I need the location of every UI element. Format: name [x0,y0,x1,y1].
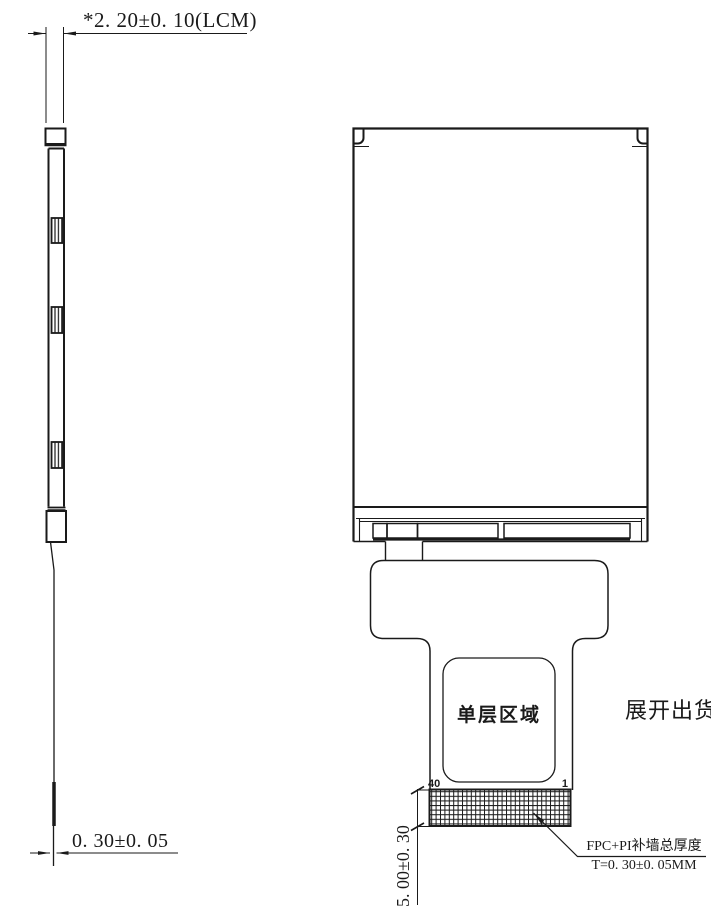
connector-dim-line [418,789,430,905]
single-layer-area-label: 单层区域 [443,706,555,725]
ledge-component-b [387,524,418,539]
connector-depth-dimension-text: 5. 00±0. 30 [394,821,414,911]
panel-notch-top-right [638,129,648,144]
fpc-note-value: T=0. 30±0. 05MM [582,859,706,873]
drawing-linework [0,0,711,914]
panel-outline [354,129,648,542]
side-component-1 [52,218,64,243]
side-bottom-cap [47,511,67,542]
ship-unfolded-note: 展开出货 [625,700,711,722]
lcm-dim-extension-lines [46,27,64,123]
side-component-2 [52,307,64,333]
side-junction-lines [48,508,66,511]
fpc-neck-tab [386,542,423,562]
lcm-dim-arrow-left [34,32,46,36]
fpc-note-title: FPC+PI补墙总厚度 [582,840,706,854]
connector-hatch [430,790,571,827]
lcm-thickness-dimension-text: *2. 20±0. 10(LCM) [83,10,257,31]
side-view [28,27,247,866]
pin-number-40: 40 [428,779,440,790]
ledge-component-c [418,524,499,539]
lcm-dim-arrow-right [64,32,76,36]
side-top-cap [46,129,66,145]
fpc-dim-arrow-right [57,851,69,855]
ledge-component-a [373,524,387,539]
panel-notch-top-left [354,129,364,144]
fpc-dim-arrow-left [38,851,50,855]
pin-number-1: 1 [556,779,568,790]
side-fpc-tail [51,542,55,783]
ledge-component-d [504,524,630,539]
side-component-3 [52,442,64,468]
engineering-drawing-lcm: *2. 20±0. 10(LCM) 0. 30±0. 05 单层区域 展开出货 … [0,0,711,914]
front-view [353,129,707,906]
fpc-thickness-dimension-text: 0. 30±0. 05 [72,831,168,851]
